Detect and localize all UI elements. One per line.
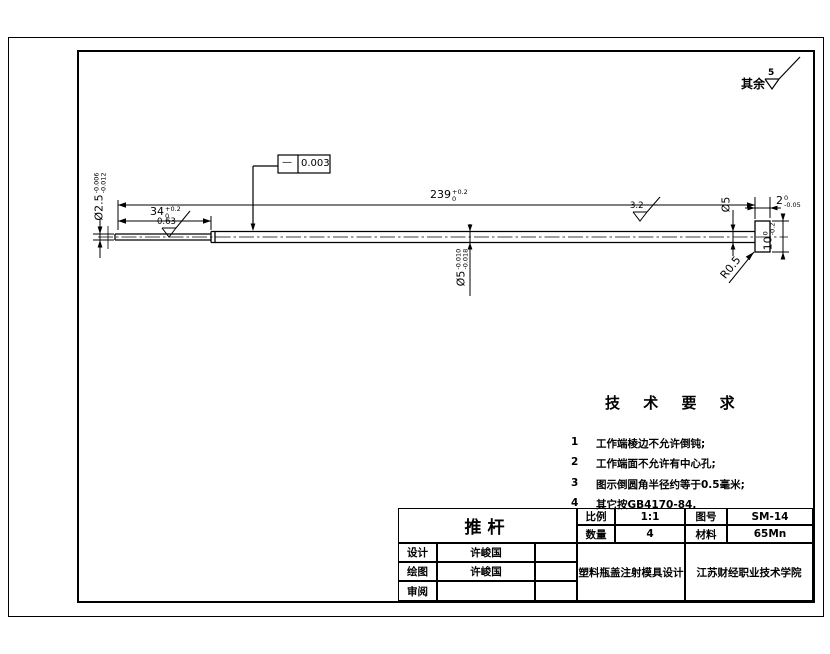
designer-value: 许峻国 <box>437 543 535 562</box>
drawing-number-label: 图号 <box>685 508 727 525</box>
item-number: 1 <box>565 436 596 451</box>
reviewer-label: 审阅 <box>398 581 437 601</box>
item-text: 工作端面不允许有中心孔; <box>596 456 716 471</box>
dim-239: 239 +0.20 <box>430 189 468 202</box>
dim-dia5-end: Ø5 <box>721 191 732 219</box>
project-name: 塑料瓶盖注射模具设计 <box>577 543 685 601</box>
tech-req-item: 1 工作端棱边不允许倒钝; <box>565 436 820 451</box>
tech-req-item: 2 工作端面不允许有中心孔; <box>565 456 820 471</box>
dim-10: 10 0-0.2 <box>763 218 776 256</box>
quantity-value: 4 <box>615 525 685 543</box>
item-number: 2 <box>565 456 596 471</box>
reviewer-value <box>437 581 535 601</box>
dim-2: 2 0-0.05 <box>776 195 801 208</box>
dim-dia2_5-lines <box>93 219 114 258</box>
title-block: 推杆 比例 1:1 图号 SM-14 数量 4 材料 65Mn 设计 许峻国 绘… <box>398 508 813 601</box>
technical-requirements-title: 技 术 要 求 <box>605 392 820 413</box>
drafter-value: 许峻国 <box>437 562 535 581</box>
drawing-number-value: SM-14 <box>727 508 813 525</box>
surface-note-value: 5 <box>768 68 774 78</box>
surface-note-text: 其余 <box>741 75 765 92</box>
empty-cell <box>535 562 577 581</box>
scale-label: 比例 <box>577 508 615 525</box>
empty-cell <box>535 581 577 601</box>
roughness-value-small-shaft: 0.63 <box>157 218 176 227</box>
shaft-outline <box>115 221 770 252</box>
scale-value: 1:1 <box>615 508 685 525</box>
material-label: 材料 <box>685 525 727 543</box>
roughness-value-main-shaft: 3.2 <box>630 202 644 211</box>
dim-dia2_5: Ø2.5 -0.006-0.012 <box>94 169 107 225</box>
item-number: 3 <box>565 477 596 492</box>
organization-name: 江苏财经职业技术学院 <box>685 543 813 601</box>
designer-label: 设计 <box>398 543 437 562</box>
part-name: 推杆 <box>398 508 577 543</box>
tech-req-item: 3 图示倒圆角半径约等于0.5毫米; <box>565 477 820 492</box>
material-value: 65Mn <box>727 525 813 543</box>
item-text: 图示倒圆角半径约等于0.5毫米; <box>596 477 745 492</box>
item-text: 工作端棱边不允许倒钝; <box>596 436 705 451</box>
technical-requirements: 技 术 要 求 1 工作端棱边不允许倒钝; 2 工作端面不允许有中心孔; 3 图… <box>565 392 820 512</box>
empty-cell <box>535 543 577 562</box>
straightness-symbol: — <box>282 158 292 168</box>
centerline <box>98 226 788 249</box>
drafter-label: 绘图 <box>398 562 437 581</box>
straightness-value: 0.003 <box>301 159 330 169</box>
quantity-label: 数量 <box>577 525 615 543</box>
dim-dia5: Ø5 -0.010-0.018 <box>456 236 469 300</box>
drawing-sheet: 239 +0.20 34 +0.20 Ø2.5 -0.006-0.012 Ø5 … <box>0 0 830 654</box>
